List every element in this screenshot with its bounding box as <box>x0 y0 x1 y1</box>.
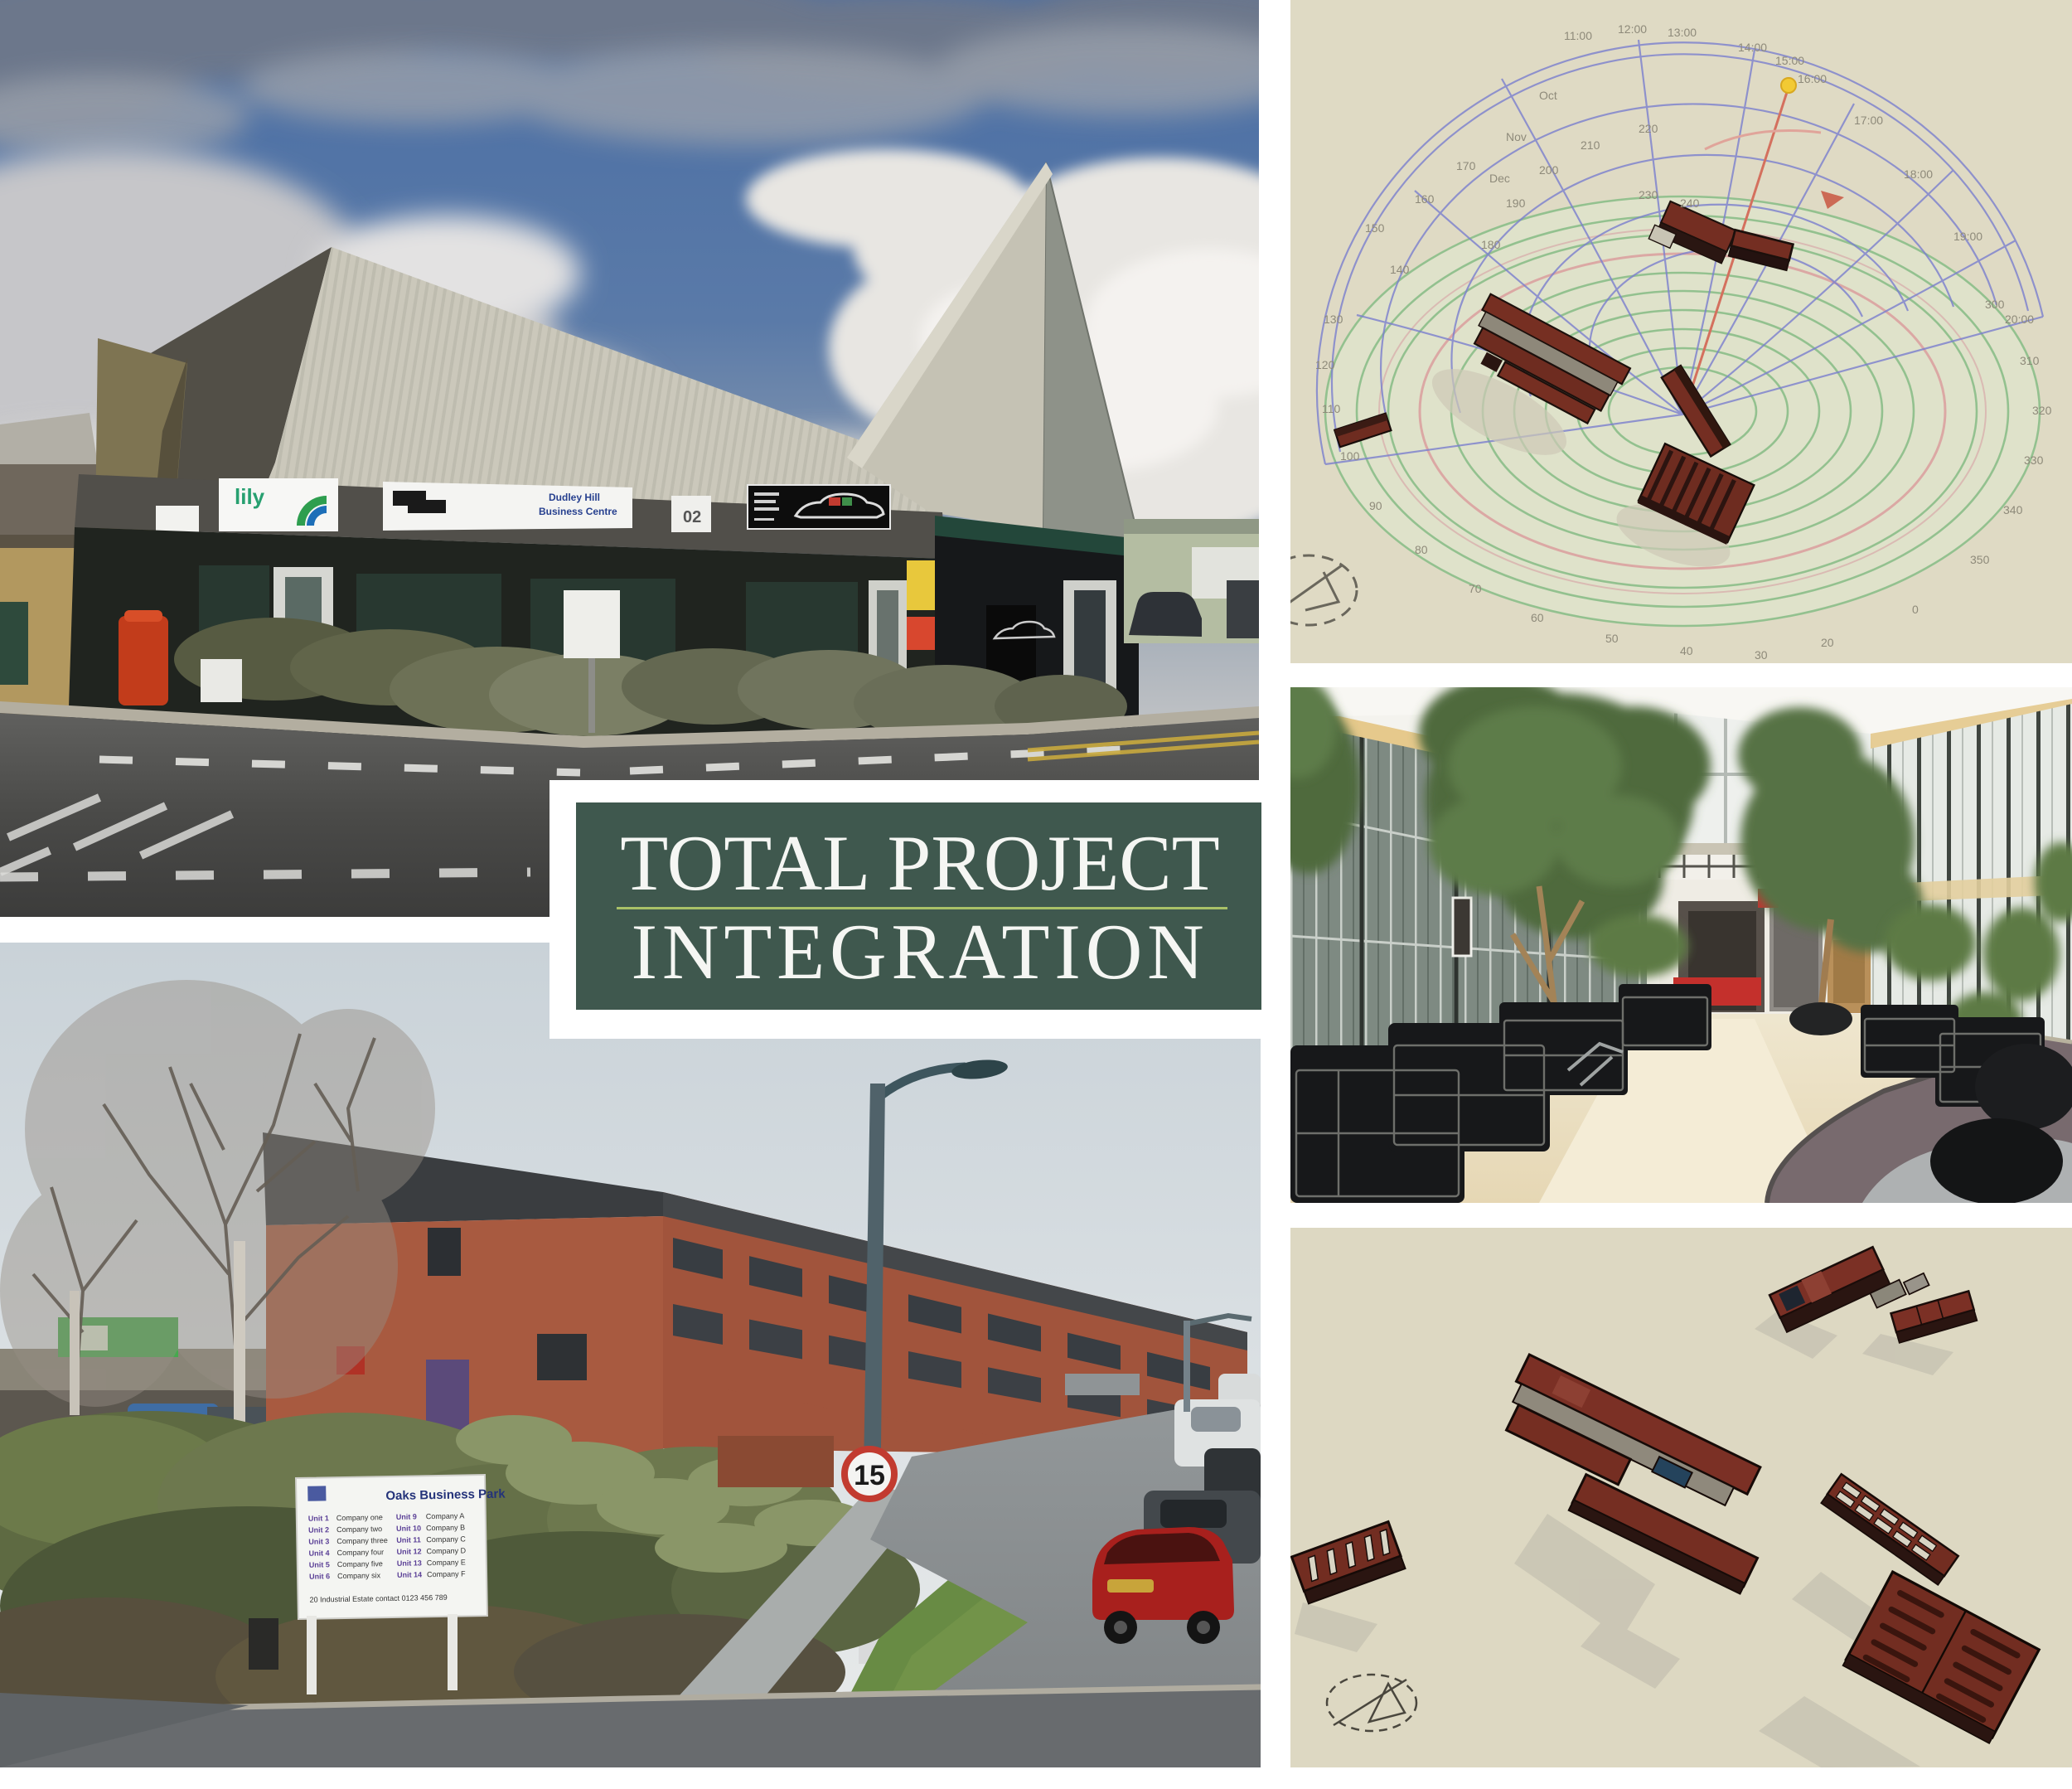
svg-text:Unit 5: Unit 5 <box>309 1560 330 1568</box>
svg-text:Unit 6: Unit 6 <box>309 1572 330 1580</box>
svg-text:Company F: Company F <box>427 1569 466 1578</box>
svg-text:190: 190 <box>1506 196 1526 210</box>
svg-text:50: 50 <box>1605 632 1619 645</box>
svg-text:15: 15 <box>854 1460 885 1491</box>
svg-text:02: 02 <box>683 508 701 526</box>
svg-text:Unit 9: Unit 9 <box>396 1512 417 1520</box>
svg-text:30: 30 <box>1755 648 1768 662</box>
svg-text:Unit 3: Unit 3 <box>308 1537 329 1545</box>
svg-text:INTEGRATION: INTEGRATION <box>631 908 1208 996</box>
svg-text:110: 110 <box>1322 402 1341 415</box>
svg-text:Unit 2: Unit 2 <box>308 1525 329 1534</box>
svg-text:130: 130 <box>1324 313 1343 326</box>
svg-text:Company three: Company three <box>336 1536 388 1545</box>
svg-text:80: 80 <box>1415 543 1428 556</box>
svg-text:Unit 13: Unit 13 <box>397 1559 422 1568</box>
svg-text:160: 160 <box>1415 192 1435 206</box>
svg-text:100: 100 <box>1340 449 1360 463</box>
svg-text:Unit 1: Unit 1 <box>308 1514 329 1522</box>
svg-text:Unit 10: Unit 10 <box>396 1524 421 1533</box>
svg-text:320: 320 <box>2032 404 2052 417</box>
svg-text:20: 20 <box>1821 636 1834 649</box>
svg-text:Dec: Dec <box>1489 172 1510 185</box>
svg-text:200: 200 <box>1539 163 1559 177</box>
svg-text:Oaks Business Park: Oaks Business Park <box>385 1487 506 1504</box>
svg-text:17:00: 17:00 <box>1854 114 1883 127</box>
svg-text:Company four: Company four <box>336 1548 384 1557</box>
svg-text:300: 300 <box>1985 298 2005 311</box>
svg-text:Unit 4: Unit 4 <box>308 1549 329 1557</box>
svg-text:Company B: Company B <box>426 1523 465 1532</box>
svg-text:TOTAL PROJECT: TOTAL PROJECT <box>620 819 1219 907</box>
svg-text:Company one: Company one <box>336 1513 383 1522</box>
svg-text:Company six: Company six <box>337 1571 381 1580</box>
svg-text:0: 0 <box>1912 603 1919 616</box>
svg-text:180: 180 <box>1481 238 1501 251</box>
svg-text:14:00: 14:00 <box>1738 41 1767 54</box>
svg-text:Company C: Company C <box>426 1534 466 1544</box>
svg-text:lily: lily <box>235 484 265 509</box>
svg-text:240: 240 <box>1680 196 1700 210</box>
svg-text:12:00: 12:00 <box>1618 22 1647 36</box>
svg-text:140: 140 <box>1390 263 1410 276</box>
svg-text:Unit 12: Unit 12 <box>396 1547 421 1556</box>
svg-text:220: 220 <box>1639 122 1658 135</box>
svg-text:Company two: Company two <box>336 1525 382 1534</box>
svg-text:Nov: Nov <box>1506 130 1527 143</box>
svg-text:170: 170 <box>1456 159 1476 172</box>
svg-text:230: 230 <box>1639 188 1658 201</box>
svg-text:Company D: Company D <box>426 1546 466 1555</box>
svg-text:20:00: 20:00 <box>2005 313 2034 326</box>
svg-text:60: 60 <box>1531 611 1544 624</box>
svg-text:Company A: Company A <box>426 1511 465 1520</box>
svg-text:340: 340 <box>2003 503 2023 516</box>
svg-text:40: 40 <box>1680 644 1693 657</box>
svg-text:18:00: 18:00 <box>1904 167 1933 181</box>
svg-text:350: 350 <box>1970 553 1990 566</box>
svg-text:Unit 11: Unit 11 <box>396 1535 421 1544</box>
svg-text:330: 330 <box>2024 453 2044 467</box>
svg-text:210: 210 <box>1581 138 1600 152</box>
svg-text:11:00: 11:00 <box>1564 29 1592 42</box>
svg-text:Company E: Company E <box>427 1558 466 1567</box>
svg-text:15:00: 15:00 <box>1775 54 1804 67</box>
svg-text:Company five: Company five <box>337 1559 383 1568</box>
svg-text:16:00: 16:00 <box>1798 72 1827 85</box>
svg-text:Business Centre: Business Centre <box>539 506 617 517</box>
svg-text:120: 120 <box>1315 358 1335 371</box>
svg-text:90: 90 <box>1369 499 1382 512</box>
svg-text:150: 150 <box>1365 221 1385 235</box>
svg-text:Unit 14: Unit 14 <box>397 1570 422 1579</box>
svg-text:19:00: 19:00 <box>1953 230 1982 243</box>
svg-text:13:00: 13:00 <box>1668 26 1697 39</box>
svg-text:70: 70 <box>1469 582 1482 595</box>
svg-text:Oct: Oct <box>1539 89 1557 102</box>
svg-text:310: 310 <box>2020 354 2040 367</box>
svg-text:Dudley Hill: Dudley Hill <box>549 492 600 503</box>
